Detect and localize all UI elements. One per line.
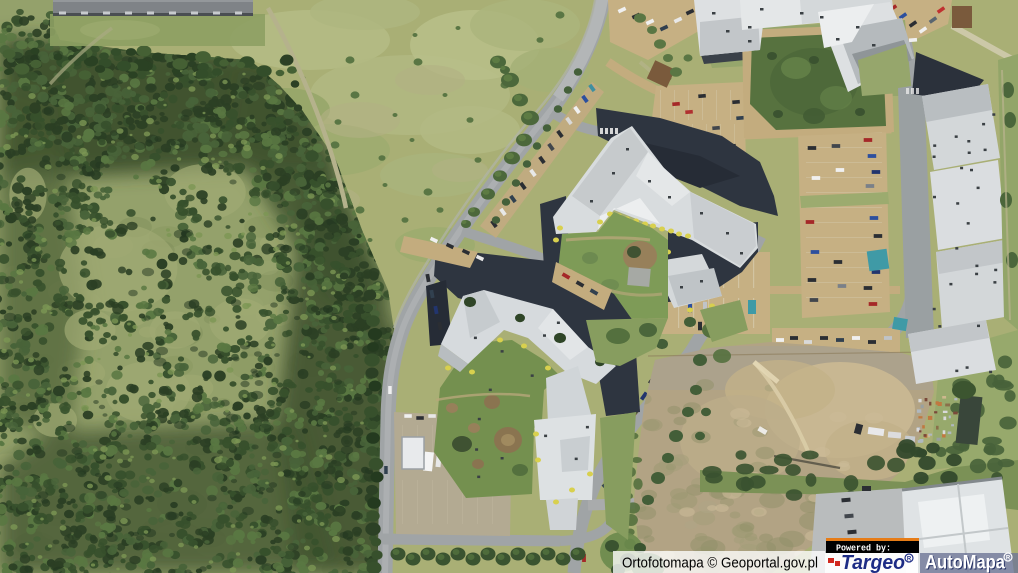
svg-text:R: R — [907, 557, 912, 563]
svg-text:Targeo: Targeo — [841, 552, 905, 573]
svg-text:AutoMapa: AutoMapa — [925, 553, 1005, 573]
svg-text:Ortofotomapa © Geoportal.gov.p: Ortofotomapa © Geoportal.gov.pl — [622, 555, 818, 572]
svg-text:R: R — [1006, 556, 1011, 562]
